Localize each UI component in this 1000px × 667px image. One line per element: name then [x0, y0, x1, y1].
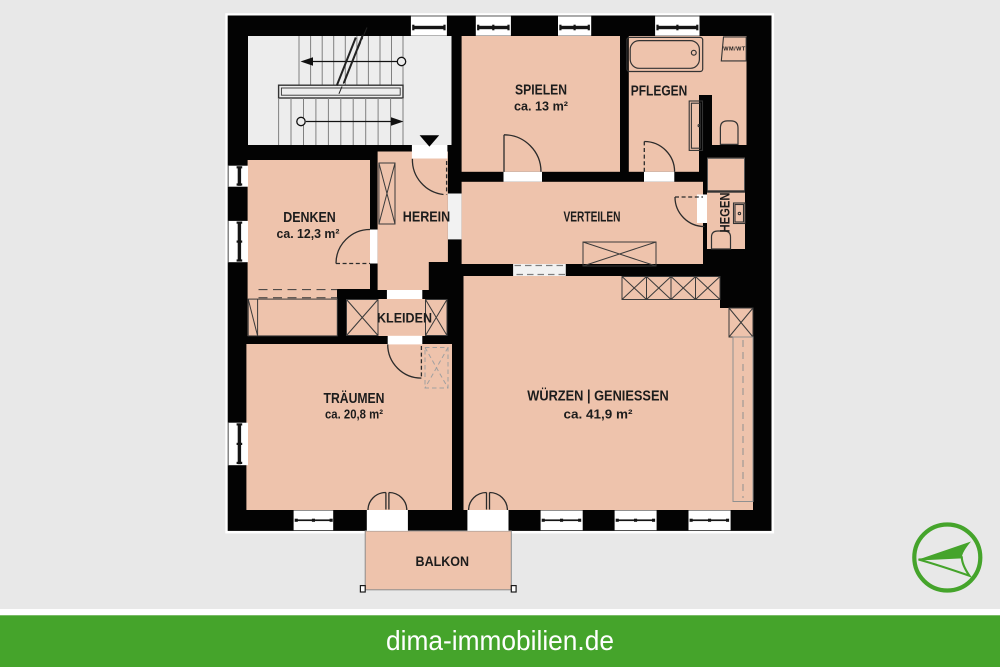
svg-text:VERTEILEN: VERTEILEN	[564, 210, 621, 226]
svg-text:ca. 41,9 m²: ca. 41,9 m²	[564, 407, 634, 422]
svg-text:TRÄUMEN: TRÄUMEN	[324, 390, 385, 407]
svg-text:HEGEN: HEGEN	[716, 193, 732, 233]
svg-text:BALKON: BALKON	[416, 553, 470, 569]
svg-text:ca. 13 m²: ca. 13 m²	[514, 98, 569, 113]
svg-text:ca. 12,3 m²: ca. 12,3 m²	[277, 226, 341, 241]
svg-text:WÜRZEN | GENIESSEN: WÜRZEN | GENIESSEN	[527, 388, 669, 405]
svg-text:WM/WT: WM/WT	[723, 47, 746, 53]
svg-text:ca. 20,8 m²: ca. 20,8 m²	[325, 407, 384, 422]
svg-text:HEREIN: HEREIN	[403, 210, 451, 226]
svg-text:PFLEGEN: PFLEGEN	[631, 83, 688, 99]
svg-text:dima-immobilien.de: dima-immobilien.de	[386, 625, 614, 656]
svg-text:KLEIDEN: KLEIDEN	[377, 310, 432, 325]
svg-text:SPIELEN: SPIELEN	[515, 83, 567, 99]
svg-text:DENKEN: DENKEN	[283, 210, 336, 226]
